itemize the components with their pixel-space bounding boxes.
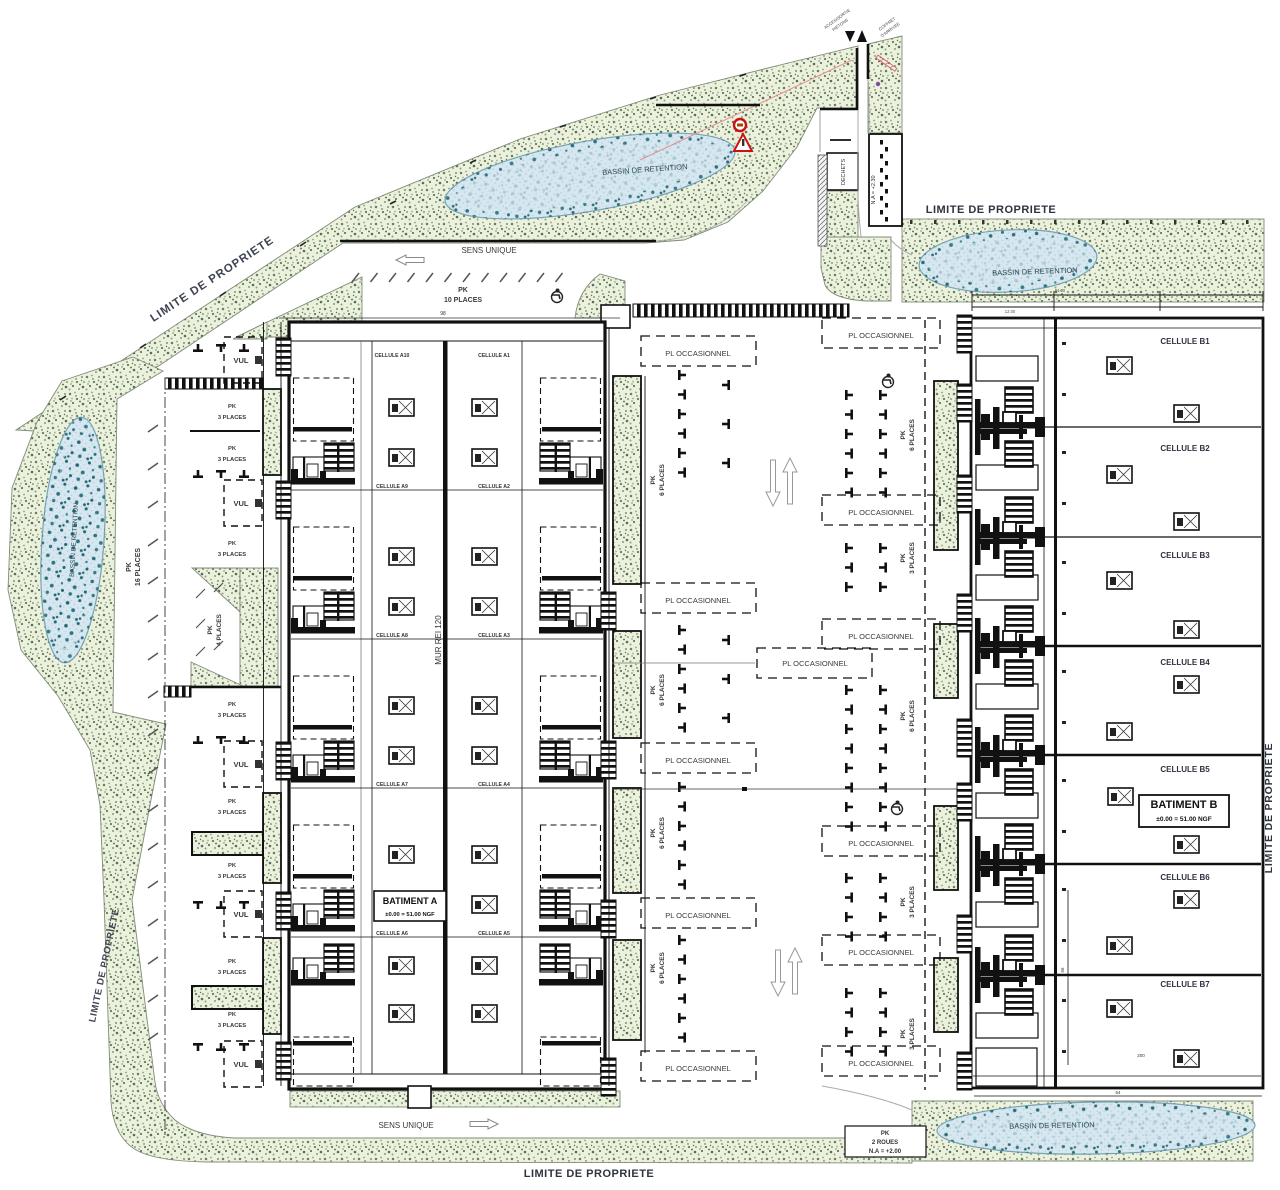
svg-text:3 PLACES: 3 PLACES <box>909 1017 916 1049</box>
svg-text:±0.00 = 51.00 NGF: ±0.00 = 51.00 NGF <box>385 912 435 918</box>
svg-text:6 PLACES: 6 PLACES <box>659 816 666 848</box>
svg-text:VUL: VUL <box>234 760 249 769</box>
svg-text:CELLULE A4: CELLULE A4 <box>478 782 510 788</box>
svg-text:200: 200 <box>1137 1053 1145 1058</box>
svg-text:PK: PK <box>900 553 907 562</box>
svg-text:PK: PK <box>650 475 657 484</box>
svg-text:PK: PK <box>228 446 237 452</box>
svg-text:84.00: 84.00 <box>1055 288 1066 293</box>
svg-text:PL OCCASIONNEL: PL OCCASIONNEL <box>665 911 731 920</box>
svg-text:4 PLACES: 4 PLACES <box>216 613 223 645</box>
svg-text:3 PLACES: 3 PLACES <box>218 713 246 719</box>
svg-text:PK: PK <box>881 1131 890 1137</box>
svg-text:CELLULE A9: CELLULE A9 <box>376 484 408 490</box>
svg-text:6 PLACES: 6 PLACES <box>909 418 916 450</box>
svg-text:VUL: VUL <box>234 910 249 919</box>
svg-text:3 PLACES: 3 PLACES <box>218 810 246 816</box>
svg-text:VUL: VUL <box>234 499 249 508</box>
svg-text:PL OCCASIONNEL: PL OCCASIONNEL <box>848 632 914 641</box>
svg-text:3 PLACES: 3 PLACES <box>218 874 246 880</box>
svg-text:3 PLACES: 3 PLACES <box>218 552 246 558</box>
svg-text:LIMITE DE PROPRIETE: LIMITE DE PROPRIETE <box>524 1168 655 1180</box>
svg-text:PK: PK <box>458 287 468 294</box>
svg-text:DECHETS: DECHETS <box>841 159 847 186</box>
svg-text:PK: PK <box>228 863 237 869</box>
svg-text:PK: PK <box>228 404 237 410</box>
svg-text:3 PLACES: 3 PLACES <box>218 970 246 976</box>
svg-text:CELLULE B4: CELLULE B4 <box>1160 658 1210 667</box>
svg-text:PK: PK <box>228 959 237 965</box>
svg-text:3 PLACES: 3 PLACES <box>909 541 916 573</box>
svg-text:PK: PK <box>228 541 237 547</box>
svg-text:PK: PK <box>650 963 657 972</box>
svg-text:CELLULE B2: CELLULE B2 <box>1160 444 1210 453</box>
svg-text:3 PLACES: 3 PLACES <box>218 1023 246 1029</box>
svg-text:3 PLACES: 3 PLACES <box>218 415 246 421</box>
svg-text:PK: PK <box>207 625 214 634</box>
svg-text:64: 64 <box>1115 1090 1121 1095</box>
svg-text:PK: PK <box>650 685 657 694</box>
svg-text:CELLULE B7: CELLULE B7 <box>1160 980 1210 989</box>
svg-text:CELLULE B1: CELLULE B1 <box>1160 337 1210 346</box>
svg-text:PK: PK <box>650 828 657 837</box>
svg-text:CELLULE A8: CELLULE A8 <box>376 633 408 639</box>
svg-text:12.00: 12.00 <box>1005 309 1016 314</box>
svg-text:PK: PK <box>900 711 907 720</box>
svg-text:6 PLACES: 6 PLACES <box>659 463 666 495</box>
svg-text:N.A = +2.00: N.A = +2.00 <box>869 1149 902 1155</box>
svg-text:CELLULE A2: CELLULE A2 <box>478 484 510 490</box>
svg-text:10 PLACES: 10 PLACES <box>444 297 482 304</box>
svg-text:PL OCCASIONNEL: PL OCCASIONNEL <box>665 349 731 358</box>
svg-text:PL OCCASIONNEL: PL OCCASIONNEL <box>665 596 731 605</box>
svg-text:PL OCCASIONNEL: PL OCCASIONNEL <box>848 839 914 848</box>
svg-text:BASSIN DE RETENTION: BASSIN DE RETENTION <box>1009 1120 1095 1130</box>
svg-text:PL OCCASIONNEL: PL OCCASIONNEL <box>848 948 914 957</box>
svg-text:PL OCCASIONNEL: PL OCCASIONNEL <box>665 756 731 765</box>
svg-text:CELLULE A7: CELLULE A7 <box>376 782 408 788</box>
svg-text:3 PLACES: 3 PLACES <box>218 457 246 463</box>
svg-text:MUR REI 120: MUR REI 120 <box>434 615 443 665</box>
svg-text:BATIMENT A: BATIMENT A <box>383 896 438 906</box>
svg-text:6 PLACES: 6 PLACES <box>659 951 666 983</box>
svg-text:SENS UNIQUE: SENS UNIQUE <box>378 1121 433 1130</box>
svg-text:SENS UNIQUE: SENS UNIQUE <box>461 246 516 255</box>
svg-text:PK: PK <box>900 430 907 439</box>
svg-text:PL OCCASIONNEL: PL OCCASIONNEL <box>782 659 848 668</box>
svg-text:6 PLACES: 6 PLACES <box>659 673 666 705</box>
svg-text:6 PLACES: 6 PLACES <box>909 699 916 731</box>
svg-text:CELLULE A5: CELLULE A5 <box>478 931 510 937</box>
svg-text:CELLULE A1: CELLULE A1 <box>478 353 510 359</box>
svg-text:16 PLACES: 16 PLACES <box>135 548 142 586</box>
svg-text:PL OCCASIONNEL: PL OCCASIONNEL <box>665 1064 731 1073</box>
svg-text:CELLULE A10: CELLULE A10 <box>375 353 410 359</box>
svg-text:PL OCCASIONNEL: PL OCCASIONNEL <box>848 508 914 517</box>
svg-text:3 PLACES: 3 PLACES <box>909 885 916 917</box>
svg-text:PK: PK <box>228 702 237 708</box>
svg-text:PL OCCASIONNEL: PL OCCASIONNEL <box>848 331 914 340</box>
svg-text:PK: PK <box>126 562 133 572</box>
svg-text:PK: PK <box>228 1012 237 1018</box>
svg-text:CELLULE B6: CELLULE B6 <box>1160 873 1210 882</box>
svg-text:CELLULE A3: CELLULE A3 <box>478 633 510 639</box>
svg-text:CELLULE A6: CELLULE A6 <box>376 931 408 937</box>
svg-text:N.A = +2.30: N.A = +2.30 <box>871 175 877 204</box>
svg-text:98: 98 <box>440 311 446 317</box>
svg-text:CELLULE B3: CELLULE B3 <box>1160 551 1210 560</box>
svg-text:LIMITE DE PROPRIETE: LIMITE DE PROPRIETE <box>1263 743 1275 874</box>
svg-text:PL OCCASIONNEL: PL OCCASIONNEL <box>848 1059 914 1068</box>
svg-text:LIMITE DE PROPRIETE: LIMITE DE PROPRIETE <box>926 204 1057 216</box>
svg-text:VUL: VUL <box>234 356 249 365</box>
svg-text:VUL: VUL <box>234 1060 249 1069</box>
svg-text:BATIMENT B: BATIMENT B <box>1150 799 1217 811</box>
svg-text:56: 56 <box>1060 967 1065 973</box>
svg-text:CELLULE B5: CELLULE B5 <box>1160 765 1210 774</box>
svg-text:2 ROUES: 2 ROUES <box>872 1140 898 1146</box>
svg-text:PK: PK <box>900 897 907 906</box>
svg-text:PK: PK <box>228 799 237 805</box>
svg-text:PK: PK <box>900 1029 907 1038</box>
svg-text:±0.00 = 51.00 NGF: ±0.00 = 51.00 NGF <box>1156 816 1211 823</box>
